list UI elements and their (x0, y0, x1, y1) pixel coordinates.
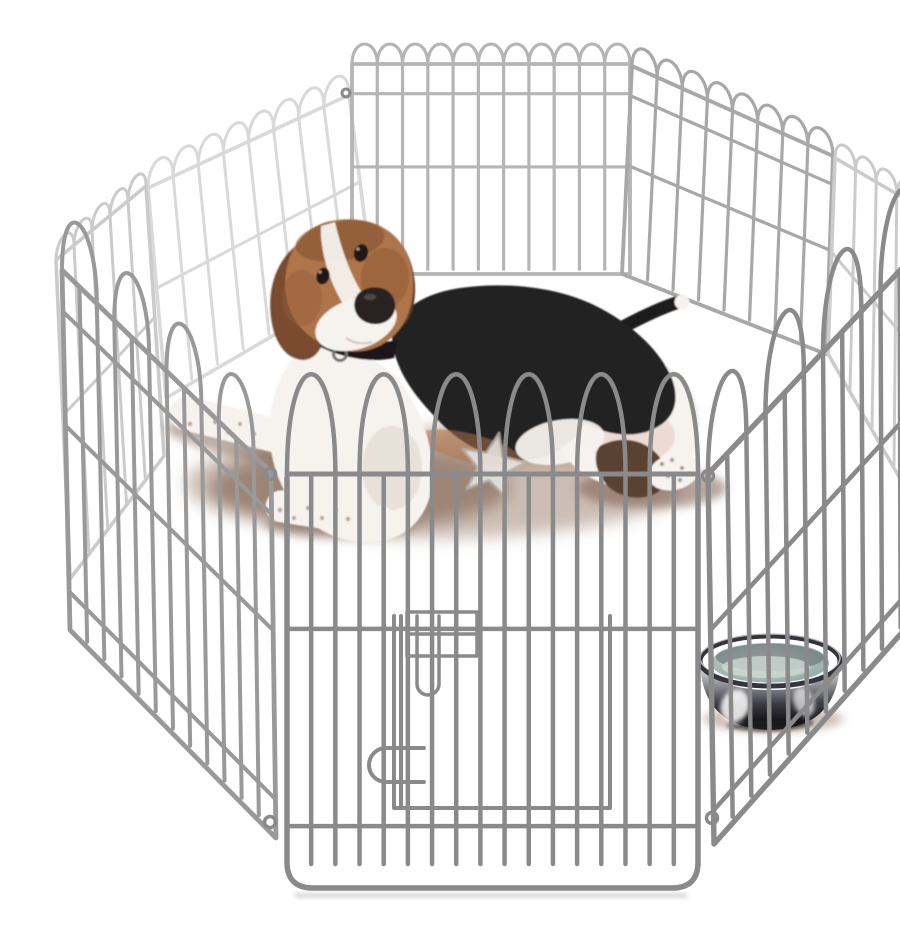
playpen-scene (40, 16, 900, 916)
product-photo: Product photo of an 8-panel silver metal… (40, 16, 900, 916)
tail-tip (675, 295, 690, 310)
ground-contact-shadow (295, 893, 687, 898)
